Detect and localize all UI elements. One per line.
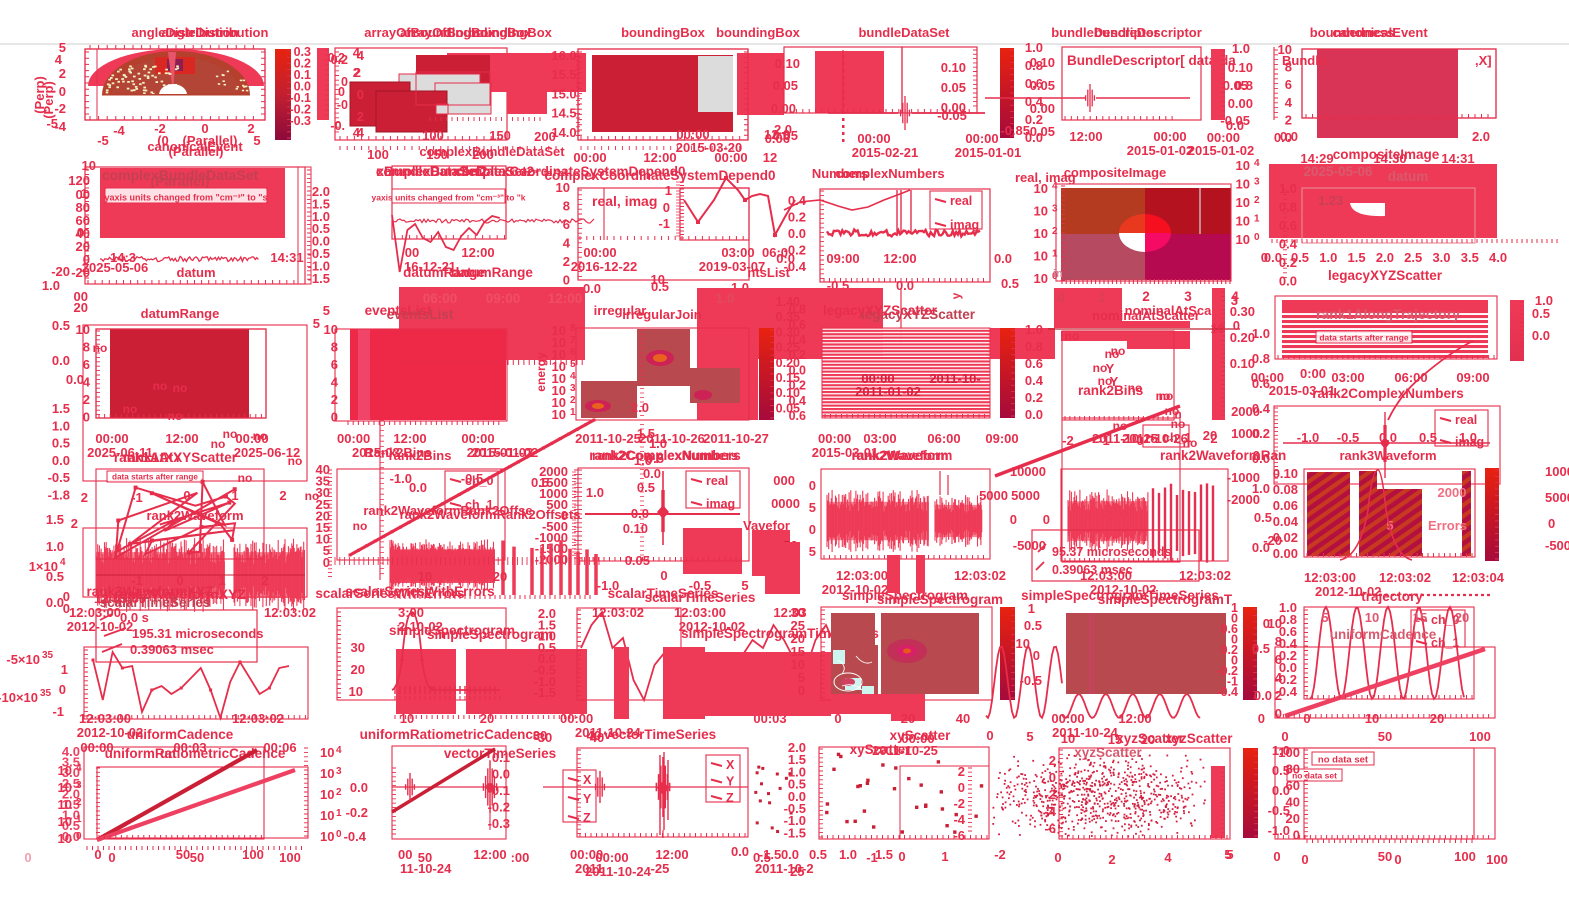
svg-text:80: 80 (1286, 762, 1300, 777)
svg-text:10: 10 (76, 322, 90, 337)
svg-text:Z: Z (726, 791, 734, 805)
svg-text:0.0: 0.0 (781, 847, 799, 862)
svg-text:0.6: 0.6 (1252, 376, 1270, 391)
svg-text:7: 7 (570, 335, 576, 346)
svg-text:10: 10 (1365, 610, 1379, 625)
svg-text:ntsList: ntsList (747, 265, 790, 280)
svg-text:10: 10 (320, 808, 334, 823)
svg-text:-5: -5 (97, 133, 109, 148)
svg-text:1.0: 1.0 (716, 291, 735, 306)
svg-text:00:00: 00:00 (560, 711, 593, 726)
svg-text:1: 1 (1254, 214, 1260, 225)
svg-text:10: 10 (1236, 177, 1250, 192)
svg-text:real: real (706, 474, 728, 488)
svg-text:0.8: 0.8 (1025, 339, 1043, 354)
svg-text:0.0 s: 0.0 s (120, 610, 149, 625)
svg-text:1.5: 1.5 (875, 847, 893, 862)
svg-text:2: 2 (357, 109, 364, 124)
svg-text:-0.2: -0.2 (346, 805, 368, 820)
svg-text:2011-10-24: 2011-10-24 (585, 864, 652, 879)
svg-text:3.5: 3.5 (1461, 250, 1479, 265)
svg-text:-0.3: -0.3 (289, 114, 311, 128)
svg-text:0.39063 msec: 0.39063 msec (130, 642, 214, 657)
svg-text:4: 4 (1052, 181, 1058, 192)
svg-text:1: 1 (231, 488, 238, 503)
svg-text:00:00: 00:00 (235, 431, 268, 446)
svg-text:2.5: 2.5 (1404, 250, 1422, 265)
svg-text:-6: -6 (1044, 821, 1056, 836)
svg-text:xyzScatter: xyzScatter (1074, 745, 1142, 760)
svg-text:-1: -1 (1098, 433, 1110, 448)
svg-text:100: 100 (1454, 849, 1476, 864)
svg-text:2: 2 (1254, 195, 1260, 206)
svg-text:10: 10 (1236, 232, 1250, 247)
svg-text:imag: imag (950, 218, 979, 232)
svg-text:boundingBox: boundingBox (621, 25, 706, 40)
svg-text:8: 8 (563, 199, 570, 214)
svg-text:3: 3 (1052, 204, 1058, 215)
svg-text:09:00: 09:00 (826, 251, 859, 266)
svg-text:5000: 5000 (1545, 490, 1569, 505)
svg-text:0.5: 0.5 (46, 569, 64, 584)
svg-text:n: n (1174, 407, 1181, 421)
svg-text:00:00: 00:00 (573, 150, 606, 165)
svg-text:0.0: 0.0 (52, 353, 70, 368)
svg-text:150: 150 (489, 128, 511, 143)
svg-text:4: 4 (60, 557, 66, 568)
svg-text:0: 0 (1273, 849, 1280, 864)
svg-text:0.0: 0.0 (52, 453, 70, 468)
svg-text:2025-05-06: 2025-05-06 (1303, 164, 1373, 179)
svg-text:5: 5 (570, 359, 576, 370)
svg-text:-0.85: -0.85 (1000, 123, 1030, 138)
svg-text:-0.3: -0.3 (488, 816, 510, 831)
svg-text:0.05: 0.05 (1030, 78, 1055, 93)
svg-text:0.00: 0.00 (1030, 101, 1055, 116)
svg-text:0.00: 0.00 (771, 101, 796, 116)
svg-text:20: 20 (1286, 811, 1300, 826)
svg-text:6: 6 (331, 357, 338, 372)
svg-text:3: 3 (76, 780, 82, 791)
svg-text:0.2: 0.2 (331, 53, 348, 67)
svg-text:10: 10 (1236, 158, 1250, 173)
svg-text:00:00: 00:00 (1051, 711, 1084, 726)
svg-text:compositeImage: compositeImage (1333, 147, 1440, 162)
svg-text:10: 10 (320, 829, 334, 844)
svg-text:X: X (583, 773, 592, 787)
svg-text:no: no (238, 471, 253, 485)
svg-text:0.0: 0.0 (66, 372, 84, 387)
svg-text:0.4: 0.4 (1025, 373, 1044, 388)
svg-text:12:00: 12:00 (883, 251, 916, 266)
svg-text:3: 3 (336, 766, 342, 777)
svg-text:15.0: 15.0 (551, 86, 576, 101)
svg-text:12:03:00: 12:03:00 (94, 591, 146, 606)
svg-text:no: no (211, 437, 226, 451)
svg-text:2015-02-21: 2015-02-21 (852, 145, 919, 160)
svg-text:10: 10 (82, 158, 96, 173)
svg-text:real: real (950, 194, 972, 208)
svg-text:-0.5: -0.5 (1337, 430, 1359, 445)
svg-text:0: 0 (1049, 770, 1056, 785)
svg-text:2: 2 (1210, 431, 1217, 446)
svg-text:-0.5: -0.5 (48, 470, 70, 485)
svg-text:X: X (726, 758, 735, 772)
svg-text:35: 35 (42, 650, 54, 661)
svg-text:10: 10 (1278, 42, 1292, 57)
svg-text:2: 2 (563, 254, 570, 269)
svg-text:-0.4: -0.4 (1275, 684, 1298, 699)
svg-text:8: 8 (331, 340, 338, 355)
svg-text:12:00: 12:00 (461, 245, 494, 260)
svg-text:10: 10 (418, 569, 432, 584)
svg-text:03:00: 03:00 (1331, 370, 1364, 385)
svg-text:boundingBox: boundingBox (716, 25, 801, 40)
svg-text:09:00: 09:00 (1456, 370, 1489, 385)
svg-text:40: 40 (1286, 795, 1300, 810)
svg-text:1.0: 1.0 (586, 485, 604, 500)
svg-text:12:00: 12:00 (473, 847, 506, 862)
svg-text:2000: 2000 (1438, 485, 1467, 500)
svg-text:12:00: 12:00 (643, 150, 676, 165)
svg-text:12:03:00: 12:03:00 (1304, 570, 1356, 585)
svg-text:0: 0 (1275, 706, 1282, 721)
svg-text:0.0: 0.0 (409, 480, 427, 495)
svg-text:no data set: no data set (1318, 755, 1369, 766)
svg-text:0.08: 0.08 (1273, 482, 1298, 497)
svg-text:1: 1 (941, 849, 948, 864)
svg-text:no: no (123, 402, 138, 416)
svg-text:1.5: 1.5 (46, 512, 64, 527)
svg-text:10: 10 (1365, 711, 1379, 726)
svg-text:1: 1 (665, 183, 672, 198)
svg-text:0.5: 0.5 (637, 480, 655, 495)
svg-text:14.0: 14.0 (551, 125, 576, 140)
svg-text:2016-12-22: 2016-12-22 (571, 259, 638, 274)
svg-text:0:0: 0:0 (776, 251, 795, 266)
svg-text:boundedness: boundedness (1310, 25, 1395, 40)
svg-text:2025-06-12: 2025-06-12 (234, 445, 301, 460)
svg-text:0.10: 0.10 (1228, 60, 1253, 75)
svg-text:100: 100 (1486, 852, 1508, 867)
svg-text:12:03:04: 12:03:04 (1452, 570, 1505, 585)
svg-text:100: 100 (1278, 745, 1300, 760)
svg-text:0.5: 0.5 (52, 436, 70, 451)
svg-text:legacyXYZScatter: legacyXYZScatter (823, 303, 938, 318)
svg-text:0.0: 0.0 (1379, 430, 1397, 445)
svg-text:2: 2 (1142, 289, 1150, 304)
svg-text:12:00: 12:00 (1069, 129, 1102, 144)
svg-text:0: 0 (1057, 290, 1065, 305)
svg-text:15: 15 (1413, 610, 1427, 625)
svg-text:2: 2 (261, 573, 268, 588)
svg-text:0: 0 (834, 711, 841, 726)
svg-text:0: 0 (1010, 512, 1017, 527)
svg-text:12:03:00: 12:03:00 (1080, 568, 1132, 583)
svg-text:2015-01-02: 2015-01-02 (1127, 143, 1194, 158)
svg-text:0.5: 0.5 (1024, 618, 1042, 633)
svg-text:-0.05: -0.05 (937, 108, 967, 123)
svg-text:4: 4 (357, 48, 365, 63)
svg-text:-2: -2 (1062, 433, 1074, 448)
svg-text:0.0: 0.0 (1532, 328, 1550, 343)
svg-text:5: 5 (313, 316, 320, 331)
svg-text:Vavefor: Vavefor (743, 518, 790, 533)
svg-text:-10×10: -10×10 (0, 690, 38, 705)
svg-text:2015-01-01: 2015-01-01 (955, 145, 1022, 160)
svg-text:0.0: 0.0 (896, 278, 914, 293)
svg-text:00: 00 (398, 847, 412, 862)
svg-text:2000: 2000 (1231, 404, 1260, 419)
svg-text:boundingBox: boundingBox (468, 25, 553, 40)
svg-text:20: 20 (493, 569, 507, 584)
svg-text:1.0: 1.0 (42, 278, 60, 293)
svg-text:0.0: 0.0 (994, 251, 1012, 266)
svg-text:0.00: 0.00 (1228, 96, 1253, 111)
svg-text:-0: -0 (337, 98, 348, 112)
svg-text:10: 10 (58, 797, 72, 812)
svg-text:0.8: 0.8 (1252, 351, 1270, 366)
svg-text:scalarTimeSeries: scalarTimeSeries (645, 590, 756, 605)
svg-text:2.0: 2.0 (1472, 129, 1490, 144)
svg-text:5: 5 (809, 544, 816, 559)
svg-text:10: 10 (58, 814, 72, 829)
svg-text:10: 10 (1236, 195, 1250, 210)
svg-text:0: 0 (1394, 852, 1401, 867)
svg-text:2: 2 (570, 395, 576, 406)
svg-text:0.5: 0.5 (809, 847, 827, 862)
svg-text:3: 3 (1254, 177, 1260, 188)
svg-text:00:00: 00:00 (583, 245, 616, 260)
svg-text:0.5: 0.5 (1291, 250, 1309, 265)
svg-text:angleDistribution: angleDistribution (162, 25, 269, 40)
svg-text:12:00: 12:00 (548, 291, 583, 306)
svg-text:10: 10 (400, 711, 414, 726)
svg-text:0: 0 (1281, 729, 1288, 744)
svg-text:1: 1 (61, 662, 68, 677)
svg-text:2: 2 (354, 65, 361, 80)
svg-text:-0.4: -0.4 (344, 829, 367, 844)
svg-text:no: no (168, 409, 183, 423)
svg-text:nominalAtSca: nominalAtSca (1125, 303, 1212, 318)
svg-text:03:00: 03:00 (721, 245, 754, 260)
svg-text:0.6: 0.6 (1025, 356, 1043, 371)
svg-text:y: y (949, 292, 963, 299)
svg-text:yaxis units changed from "cm⁻³: yaxis units changed from "cm⁻³" to "k (371, 193, 525, 203)
svg-text:-0.1: -0.1 (488, 783, 510, 798)
svg-text:60: 60 (1286, 778, 1300, 793)
svg-text:11-10-24: 11-10-24 (400, 861, 452, 876)
svg-text:0.00: 0.00 (1273, 546, 1298, 561)
svg-text:1.0: 1.0 (839, 847, 857, 862)
svg-text:2: 2 (1285, 112, 1292, 127)
svg-text:1: 1 (1098, 290, 1106, 305)
svg-text:no: no (1111, 344, 1126, 358)
svg-text:1: 1 (1052, 249, 1058, 260)
svg-text:0: 0 (809, 478, 816, 493)
svg-text:00:00: 00:00 (95, 431, 128, 446)
svg-text:BundleDescriptor[ data,da: BundleDescriptor[ data,da (1067, 53, 1236, 68)
svg-text:0: 0 (59, 682, 66, 697)
svg-text:12:03:02: 12:03:02 (1379, 570, 1431, 585)
svg-text:0.0: 0.0 (788, 226, 806, 241)
svg-text:1.0: 1.0 (649, 436, 667, 451)
svg-text:uniformRatiometricCadence: uniformRatiometricCadence (105, 746, 286, 761)
svg-text:trajectory: trajectory (1361, 589, 1423, 604)
svg-text:12:00: 12:00 (393, 431, 426, 446)
svg-text:95.37 microseconds: 95.37 microseconds (1052, 545, 1172, 559)
svg-text:0: 0 (986, 728, 993, 743)
svg-text:10: 10 (1034, 249, 1048, 264)
svg-text:20: 20 (351, 662, 365, 677)
svg-text:compositeImage: compositeImage (1064, 165, 1167, 180)
svg-text:rank2ComplexNumbers: rank2ComplexNumbers (1312, 386, 1464, 401)
svg-text:0: 0 (1253, 448, 1260, 463)
svg-text:09:00: 09:00 (985, 431, 1018, 446)
svg-text:no: no (153, 379, 168, 393)
svg-text:irregular: irregular (594, 303, 647, 318)
svg-text:1.0: 1.0 (52, 418, 70, 433)
svg-text:-2: -2 (54, 101, 66, 116)
svg-text:0.0: 0.0 (46, 595, 64, 610)
svg-text:10: 10 (1034, 226, 1048, 241)
svg-text:0.0: 0.0 (731, 844, 749, 859)
svg-text:1000: 1000 (1231, 426, 1260, 441)
svg-text:Z: Z (583, 811, 591, 825)
svg-text:1.0: 1.0 (1459, 430, 1477, 445)
svg-text:0.6: 0.6 (789, 409, 806, 423)
svg-text:10: 10 (58, 763, 72, 778)
svg-text:0.0: 0.0 (1025, 407, 1043, 422)
svg-text:0: 0 (1548, 516, 1555, 531)
svg-text:10: 10 (1211, 321, 1225, 336)
svg-text:4: 4 (331, 375, 339, 390)
svg-text:(Parallel): (Parallel) (150, 173, 209, 189)
svg-text:12:03:02: 12:03:02 (954, 568, 1006, 583)
svg-text:(Perp): (Perp) (41, 81, 56, 119)
svg-text:2.0: 2.0 (631, 400, 649, 415)
svg-text:12:00: 12:00 (165, 431, 198, 446)
svg-text:4: 4 (1285, 95, 1293, 110)
svg-text:195.31 microseconds: 195.31 microseconds (132, 626, 264, 641)
svg-text:2: 2 (331, 392, 338, 407)
svg-text:-1.5: -1.5 (784, 825, 806, 840)
svg-text:4: 4 (336, 745, 342, 756)
svg-text:10000: 10000 (1545, 464, 1569, 479)
svg-text:4: 4 (76, 763, 82, 774)
svg-text:00:00: 00:00 (337, 431, 370, 446)
svg-text:2: 2 (1108, 852, 1115, 867)
svg-text:xyzScatter: xyzScatter (1116, 731, 1184, 746)
svg-text:0: 0 (331, 410, 338, 425)
svg-text:yaxis units changed from "cm⁻³: yaxis units changed from "cm⁻³" to "s (104, 193, 267, 203)
svg-text:complexBundleDataSet: complexBundleDataSet (419, 144, 565, 159)
svg-text:8: 8 (83, 340, 90, 355)
svg-text:0: 0 (1303, 711, 1310, 726)
svg-text:12:03:00: 12:03:00 (674, 605, 726, 620)
svg-text:1.5: 1.5 (52, 401, 70, 416)
svg-text:rank3Waveform: rank3Waveform (1339, 448, 1436, 463)
svg-text:00:00: 00:00 (965, 131, 998, 146)
svg-text:12:03:02: 12:03:02 (1179, 568, 1231, 583)
svg-text:0: 0 (83, 410, 90, 425)
svg-text:00: 00 (405, 245, 419, 260)
svg-text:6: 6 (83, 357, 90, 372)
svg-text:0.1: 0.1 (492, 750, 510, 765)
svg-text:0: 0 (183, 488, 190, 503)
svg-text:10: 10 (58, 780, 72, 795)
svg-text:0: 0 (1258, 711, 1265, 726)
svg-text:bundleDescriptor: bundleDescriptor (1094, 25, 1202, 40)
svg-text:rank2Bins: rank2Bins (1078, 383, 1143, 398)
svg-text:-1.5: -1.5 (534, 685, 556, 700)
svg-text:00:00: 00:00 (714, 150, 747, 165)
svg-text:8: 8 (1285, 60, 1292, 75)
svg-text:100: 100 (1469, 729, 1491, 744)
svg-text:simpleSpectrogram: simpleSpectrogram (877, 592, 1003, 607)
svg-text:14:31: 14:31 (1441, 151, 1474, 166)
svg-text:100: 100 (422, 128, 444, 143)
svg-text:datumRange: datumRange (141, 306, 220, 321)
svg-text:0: 0 (24, 850, 31, 865)
svg-text:50: 50 (176, 847, 190, 862)
svg-text:10: 10 (556, 180, 570, 195)
svg-text:0.0: 0.0 (1279, 274, 1297, 289)
svg-text:20: 20 (74, 300, 88, 315)
svg-text:10: 10 (1034, 271, 1048, 286)
svg-text:20: 20 (480, 711, 494, 726)
svg-text:2015-01-02: 2015-01-02 (1188, 143, 1255, 158)
svg-text:2: 2 (958, 764, 965, 779)
svg-text:1.0: 1.0 (1252, 326, 1270, 341)
svg-text:10: 10 (58, 831, 72, 846)
svg-text:-4: -4 (54, 119, 66, 134)
svg-text:uniformRatiometricCadence: uniformRatiometricCadence (360, 727, 541, 742)
svg-text:0.0: 0.0 (350, 780, 368, 795)
svg-text:10: 10 (349, 684, 363, 699)
svg-text:0: 0 (1301, 852, 1308, 867)
svg-text:2011-10-: 2011-10- (929, 371, 980, 386)
svg-text:0.06: 0.06 (765, 131, 790, 146)
svg-text:-4: -4 (113, 123, 125, 138)
svg-text:3: 3 (570, 383, 576, 394)
svg-text:0: 0 (357, 87, 364, 102)
svg-text:03:00: 03:00 (863, 431, 896, 446)
svg-text:06:00: 06:00 (1394, 370, 1427, 385)
svg-text:0.10: 0.10 (1273, 466, 1298, 481)
svg-text:4: 4 (570, 371, 576, 382)
svg-text:-0.4: -0.4 (1216, 685, 1238, 699)
svg-text:50: 50 (1378, 729, 1392, 744)
svg-text:-1: -1 (131, 490, 143, 505)
svg-text:0.0: 0.0 (643, 466, 661, 481)
svg-text:0: 0 (1033, 648, 1040, 663)
svg-text:4: 4 (55, 52, 63, 67)
svg-text:data starts after range: data starts after range (112, 473, 198, 482)
svg-text:rank1AlongTrajectory: rank1AlongTrajectory (1316, 306, 1460, 322)
svg-text:1.0: 1.0 (1232, 41, 1250, 56)
svg-text:0.05: 0.05 (773, 78, 798, 93)
svg-text:0.5: 0.5 (531, 475, 549, 490)
svg-text:2: 2 (1052, 226, 1058, 237)
svg-text:4: 4 (1164, 850, 1172, 865)
svg-text:datumRange: datumRange (403, 265, 485, 280)
svg-text:10: 10 (1236, 214, 1250, 229)
svg-text:-0.2: -0.2 (488, 800, 510, 815)
svg-text:100: 100 (367, 147, 389, 162)
svg-text:1: 1 (336, 808, 342, 819)
svg-text:1.0: 1.0 (1319, 250, 1337, 265)
